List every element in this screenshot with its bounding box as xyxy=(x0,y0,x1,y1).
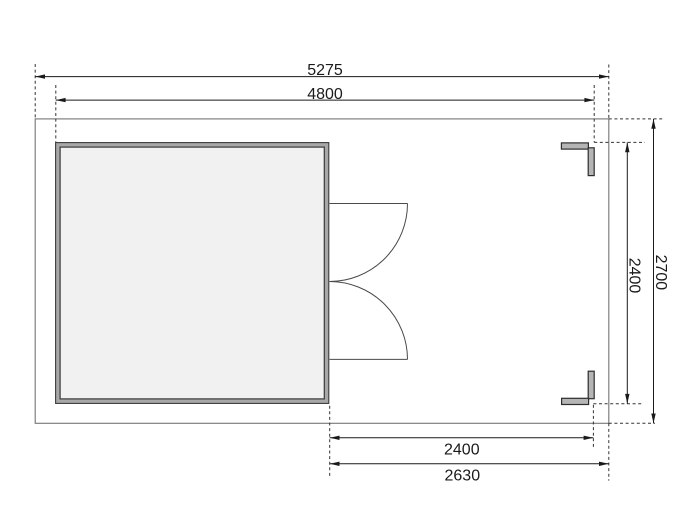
svg-text:4800: 4800 xyxy=(307,86,343,103)
svg-text:2400: 2400 xyxy=(626,258,643,294)
svg-text:2400: 2400 xyxy=(444,441,480,458)
svg-text:2700: 2700 xyxy=(652,255,669,291)
svg-text:5275: 5275 xyxy=(307,62,343,79)
svg-text:2630: 2630 xyxy=(445,468,481,485)
